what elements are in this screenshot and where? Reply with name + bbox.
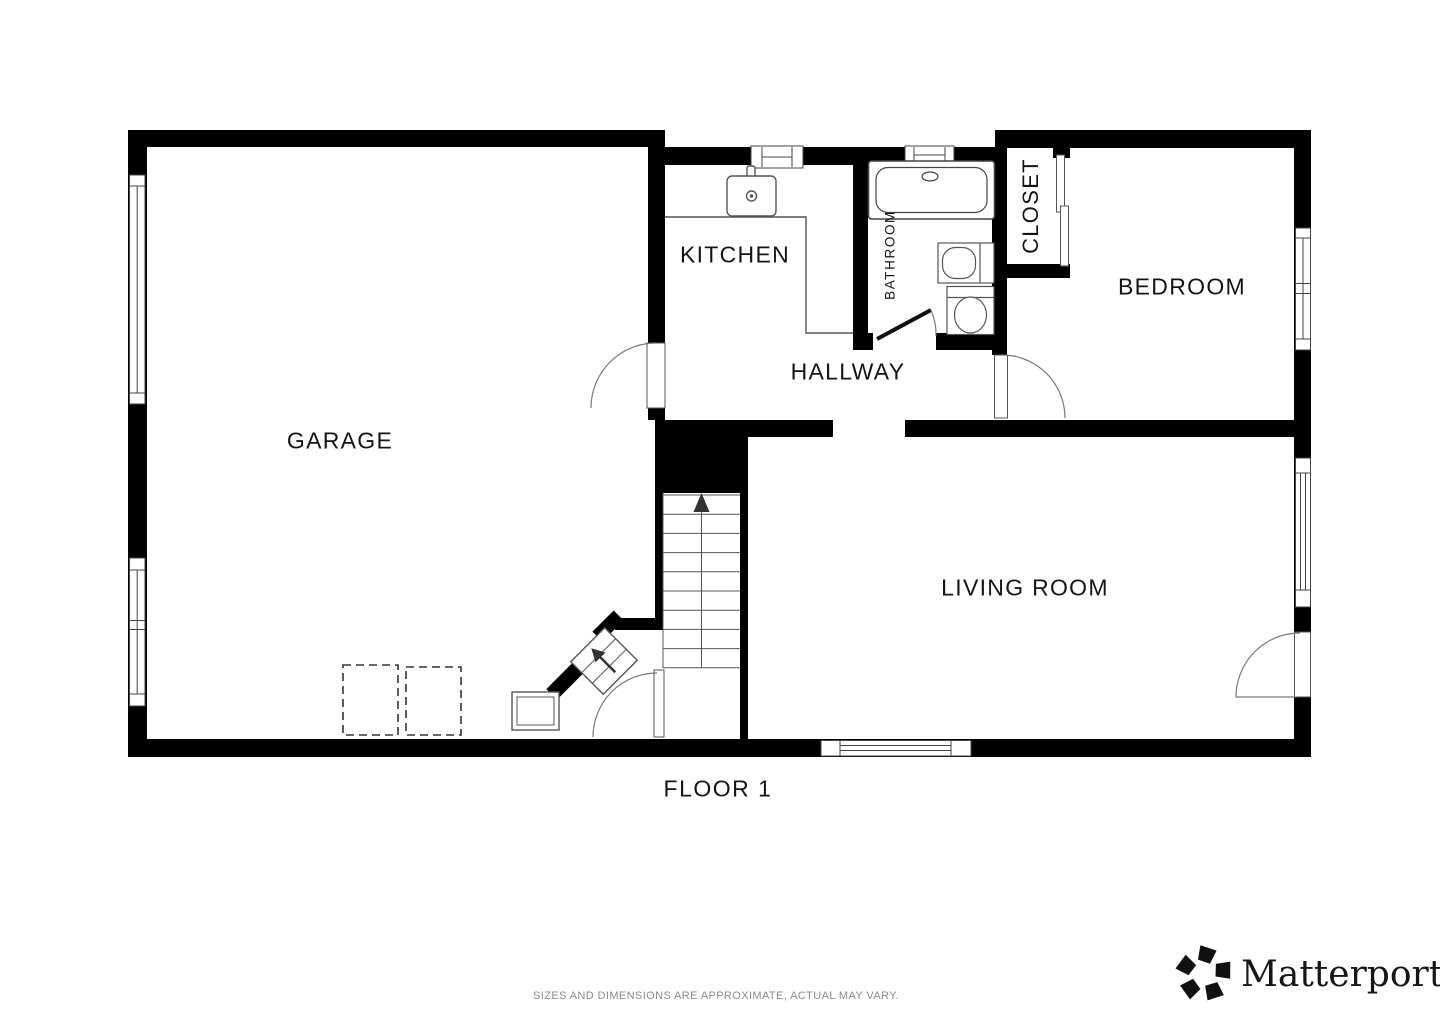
staircase [663,493,740,668]
kitchen-window [751,146,803,168]
appliance-dashed-box [343,665,398,735]
matterport-pinwheel-icon [1174,944,1234,1004]
toilet [947,287,994,335]
living-room-side-window [1296,458,1311,607]
room-label-bathroom: BATHROOM [883,210,898,300]
room-label-bedroom: BEDROOM [1118,274,1246,301]
garage-kitchen-door [591,343,665,408]
garage-window-pair [130,558,146,706]
disclaimer-text: SIZES AND DIMENSIONS ARE APPROXIMATE, AC… [533,990,899,1002]
floor-plan-page: GARAGE KITCHEN BATHROOM CLOSET BEDROOM H… [0,0,1440,1018]
entry-step-platform [512,692,559,730]
garage-appliance-boxes [343,665,461,735]
floor-plan-drawing [0,0,1440,1018]
kitchen-sink [727,166,776,216]
room-label-closet: CLOSET [1018,158,1044,254]
wall-hallway-bottom-left [655,420,833,437]
room-label-kitchen: KITCHEN [680,242,790,269]
matterport-logo: Matterport® [1174,944,1440,1004]
room-label-living-room: LIVING ROOM [941,575,1109,602]
garage-window-tall [130,175,146,404]
vanity-sink [938,243,994,283]
wall-closet-bottom [992,264,1070,278]
living-room-bottom-window [821,741,971,757]
garage-entry-steps [571,628,637,694]
appliance-dashed-box [406,667,461,735]
bedroom-window [1296,228,1311,350]
wall-top-garage [128,130,665,147]
wall-kitchen-bathroom [853,163,868,335]
bedroom-door [995,355,1066,418]
kitchen-counter [665,217,853,333]
floor-title: FLOOR 1 [664,776,773,803]
room-label-hallway: HALLWAY [791,359,906,386]
matterport-wordmark: Matterport [1241,954,1440,995]
bathroom-door [877,310,936,339]
room-label-garage: GARAGE [287,428,393,455]
wall-bathroom-bottom-left [853,333,873,350]
wall-bottom [128,739,1311,757]
closet-sliding-door [1057,155,1069,266]
wall-hallway-bedroom-bottom [905,420,1311,437]
stairs-up-arrow [694,493,710,512]
living-room-entry-door [1236,632,1311,697]
wall-top-bedroom [995,130,1311,148]
wall-stair-living-divider [740,437,748,739]
